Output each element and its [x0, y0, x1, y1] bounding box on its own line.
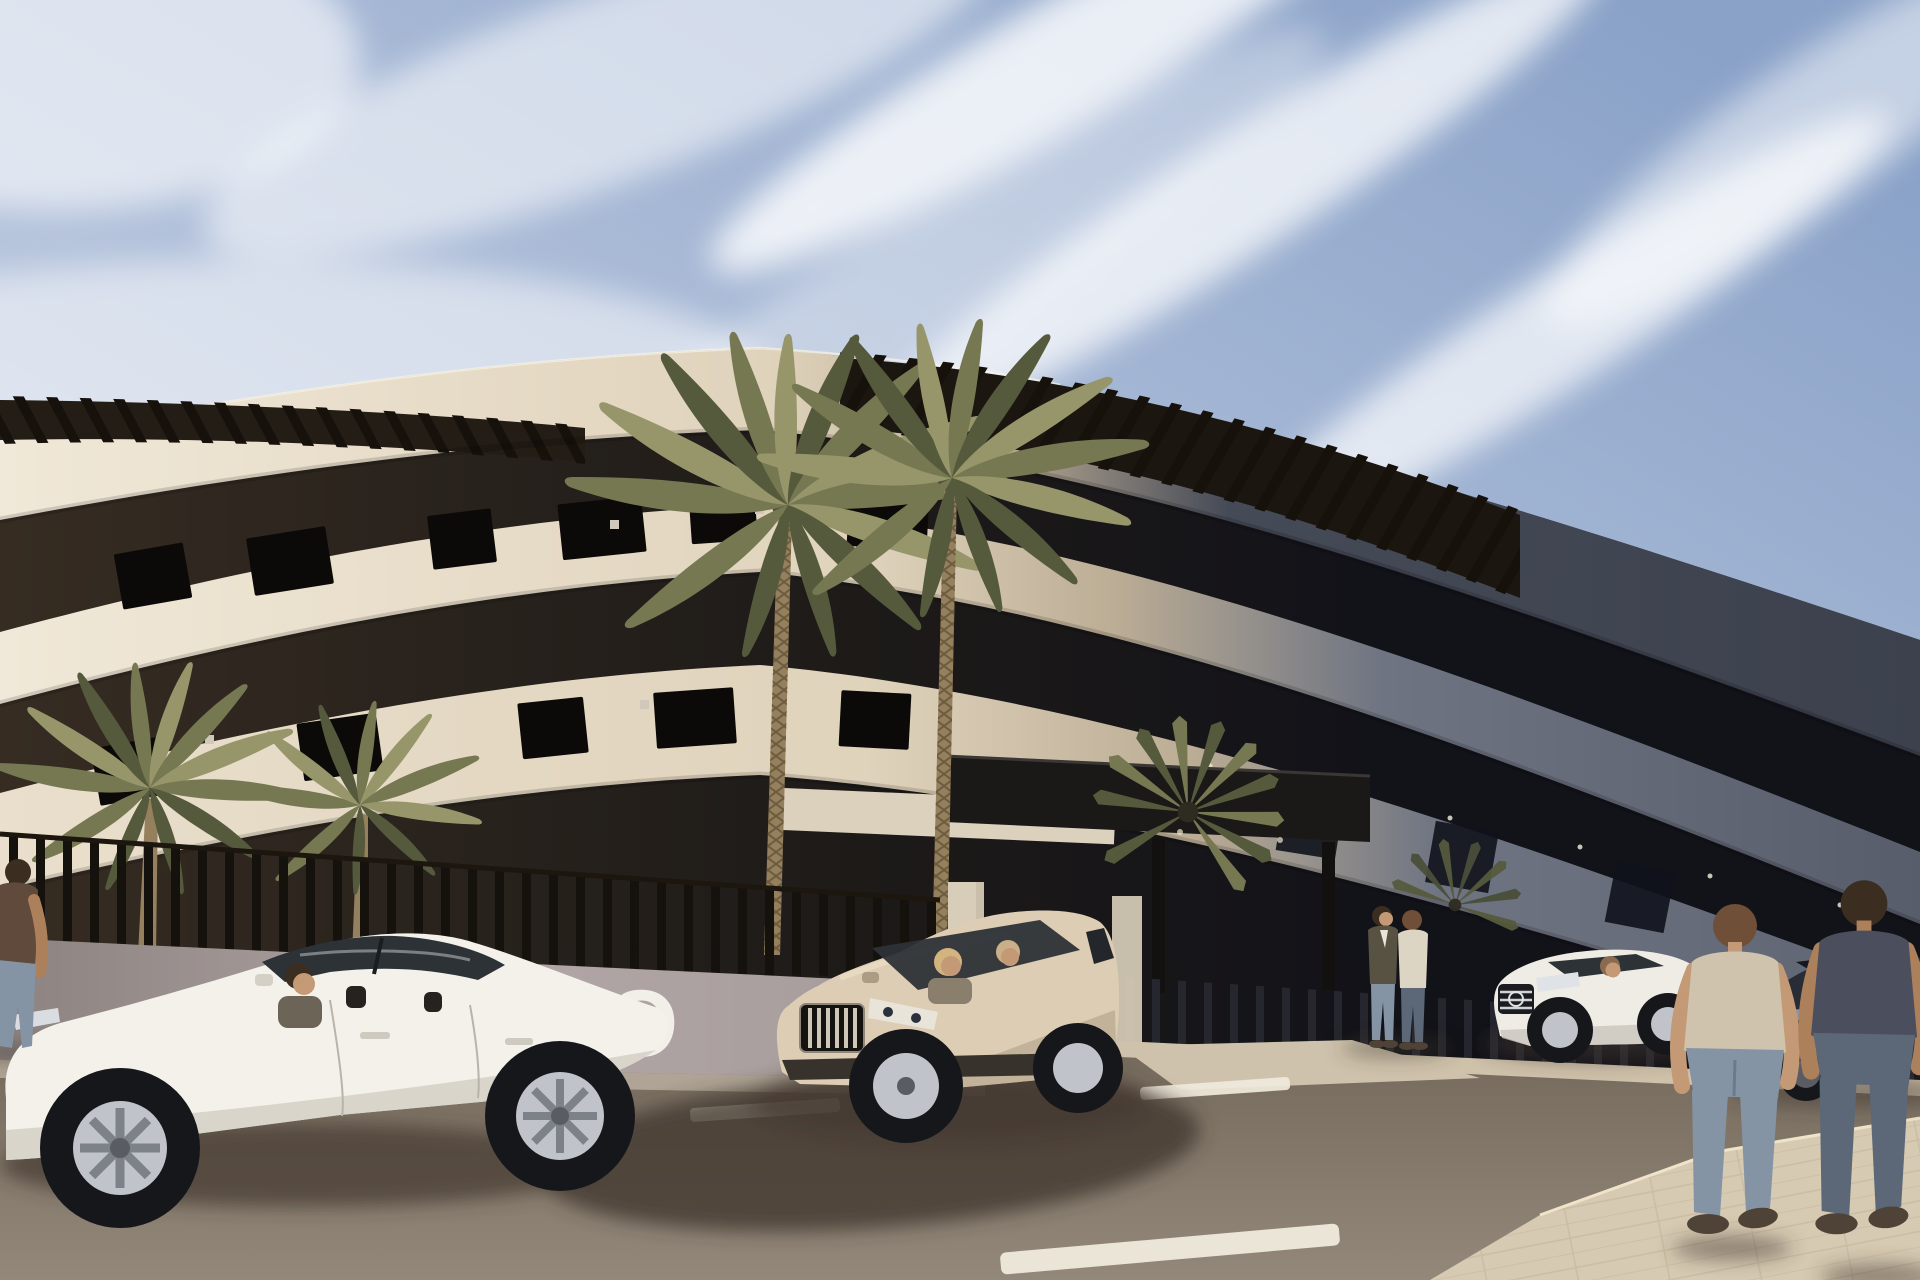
person-shoe — [1687, 1214, 1729, 1234]
driver-body — [278, 996, 322, 1028]
person-shadow — [1672, 1236, 1792, 1260]
person-hips — [1813, 1033, 1915, 1086]
front-wheel — [40, 1068, 200, 1228]
suv-driver-body — [928, 978, 972, 1004]
person-head — [1402, 910, 1422, 930]
side-mirror — [862, 972, 879, 983]
fan-palm-core — [1178, 802, 1199, 823]
wheel-hub — [897, 1077, 915, 1095]
window — [246, 526, 334, 596]
downlight — [1448, 816, 1453, 821]
headlight-lens — [911, 1013, 921, 1023]
car-wheel-rim — [1053, 1043, 1103, 1093]
headlight-lens — [883, 1007, 893, 1017]
person-torso — [1811, 931, 1917, 1048]
architectural-render: TO — [0, 0, 1920, 1280]
window — [114, 542, 193, 609]
person-head — [5, 859, 31, 885]
wall-lamp — [610, 520, 619, 529]
driver-face — [1606, 963, 1621, 978]
wall-lamp — [640, 700, 649, 709]
window — [839, 690, 912, 750]
canopy-post — [1322, 842, 1335, 990]
canopy-post — [1152, 838, 1165, 993]
scene-svg: TO — [0, 0, 1920, 1280]
person-shoe — [1412, 1042, 1428, 1050]
window — [653, 687, 737, 748]
headrest — [424, 992, 442, 1012]
rear-wheel — [485, 1041, 635, 1191]
suv-driver-face — [941, 956, 961, 976]
window — [517, 697, 588, 760]
side-mirror — [255, 974, 273, 986]
door-handle — [360, 1032, 390, 1039]
window — [427, 508, 497, 569]
fan-palm-core — [1449, 899, 1462, 912]
person-jacket — [1398, 930, 1428, 989]
driver-face — [293, 973, 315, 995]
person-head — [1713, 904, 1757, 948]
wheel-hub — [110, 1138, 130, 1158]
door-handle — [505, 1038, 533, 1045]
window — [557, 496, 646, 560]
downlight — [1708, 874, 1713, 879]
suv-passenger-face — [1001, 948, 1019, 966]
canopy-light — [1277, 837, 1283, 843]
person-shoe — [1382, 1040, 1398, 1048]
downlight — [1578, 845, 1583, 850]
car-wheel-rim — [1542, 1012, 1578, 1048]
person-torso — [1684, 952, 1786, 1063]
person-face — [1379, 912, 1393, 926]
wheel-hub — [551, 1107, 569, 1125]
person-shoe — [1815, 1213, 1857, 1234]
canopy-light — [1177, 829, 1183, 835]
headrest — [346, 986, 366, 1008]
person-shadow — [1341, 1038, 1451, 1058]
person-head — [1841, 880, 1888, 927]
jeans-seam — [1734, 1060, 1735, 1096]
window — [1605, 861, 1676, 933]
